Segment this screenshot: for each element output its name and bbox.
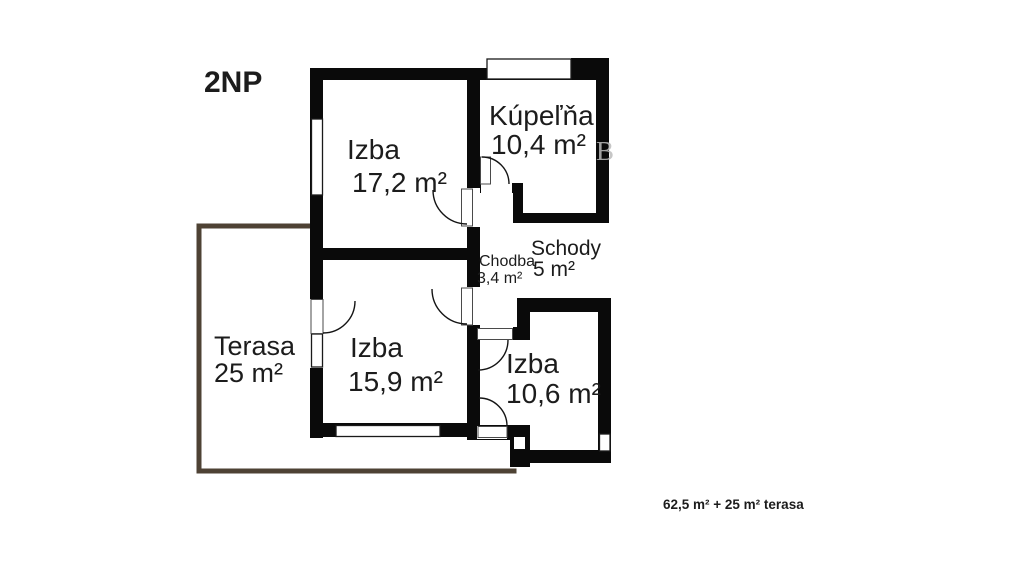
wall-room10-lintel [513,327,530,340]
terrace-edge-bottom [197,469,517,474]
window-room15 [336,426,440,437]
terrace-area-label: 25 m² [214,358,283,388]
bathroom-area-label: 10,4 m² [491,129,586,160]
door-leaf-hall-terrace [478,427,507,438]
door-leaf-room15 [462,288,473,325]
opening-notch [514,437,525,449]
door-arc-terrace [323,301,355,333]
room10-area-label: 10,6 m² [506,378,601,409]
room15-name-label: Izba [350,332,403,363]
window-bathroom [487,59,571,79]
room10-name-label: Izba [506,348,559,379]
total-area-label: 62,5 m² + 25 m² terasa [663,497,804,512]
wall-openings [310,183,525,449]
wall-mid-horizontal [310,248,480,260]
room17-name-label: Izba [347,134,400,165]
terrace-edge-left [197,224,202,474]
window-room17 [312,119,323,195]
window-room10 [600,434,611,451]
door-leaf-bathroom [481,157,491,184]
door-leaf-room17 [462,189,473,226]
stairs-area-label: 5 m² [533,258,575,281]
terrace-name-label: Terasa [214,331,296,361]
wall-room10-top [517,298,610,312]
door-arc-hall-terrace [479,398,507,426]
stairs-name-label: Schody [531,237,602,260]
bathroom-name-label: Kúpeľňa [489,100,594,131]
labels: 2NP Izba 17,2 m² Kúpeľňa 10,4 m² Chodba … [204,66,804,512]
door-arc-room10 [478,340,508,370]
watermark-letter: B [596,136,614,166]
floorplan-page: 2NP Izba 17,2 m² Kúpeľňa 10,4 m² Chodba … [0,0,1011,570]
terrace-edge-top [197,224,313,229]
hall-area-label: 3,4 m² [477,270,523,287]
room15-area-label: 15,9 m² [348,366,443,397]
floor-label: 2NP [204,66,262,99]
wall-room10-bottom [513,450,611,463]
room17-area-label: 17,2 m² [352,167,447,198]
floorplan-drawing: 2NP Izba 17,2 m² Kúpeľňa 10,4 m² Chodba … [0,0,1011,570]
hall-name-label: Chodba [479,253,535,270]
door-leaf-terrace [311,300,323,334]
wall-bathroom-bottom-right [513,213,609,223]
window-room15-side [312,334,323,367]
door-leaf-room10 [478,329,513,340]
